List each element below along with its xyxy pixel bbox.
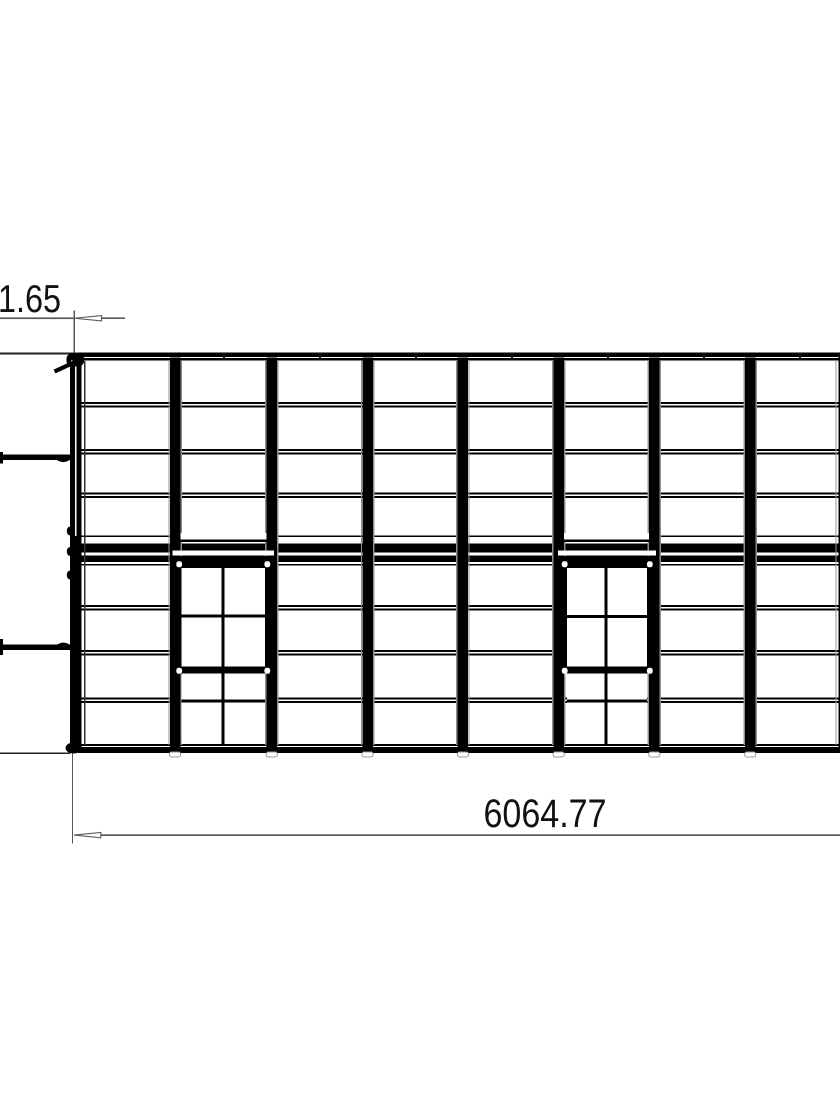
svg-text:1.65: 1.65 [0, 278, 61, 321]
svg-text:6064.77: 6064.77 [484, 792, 607, 836]
